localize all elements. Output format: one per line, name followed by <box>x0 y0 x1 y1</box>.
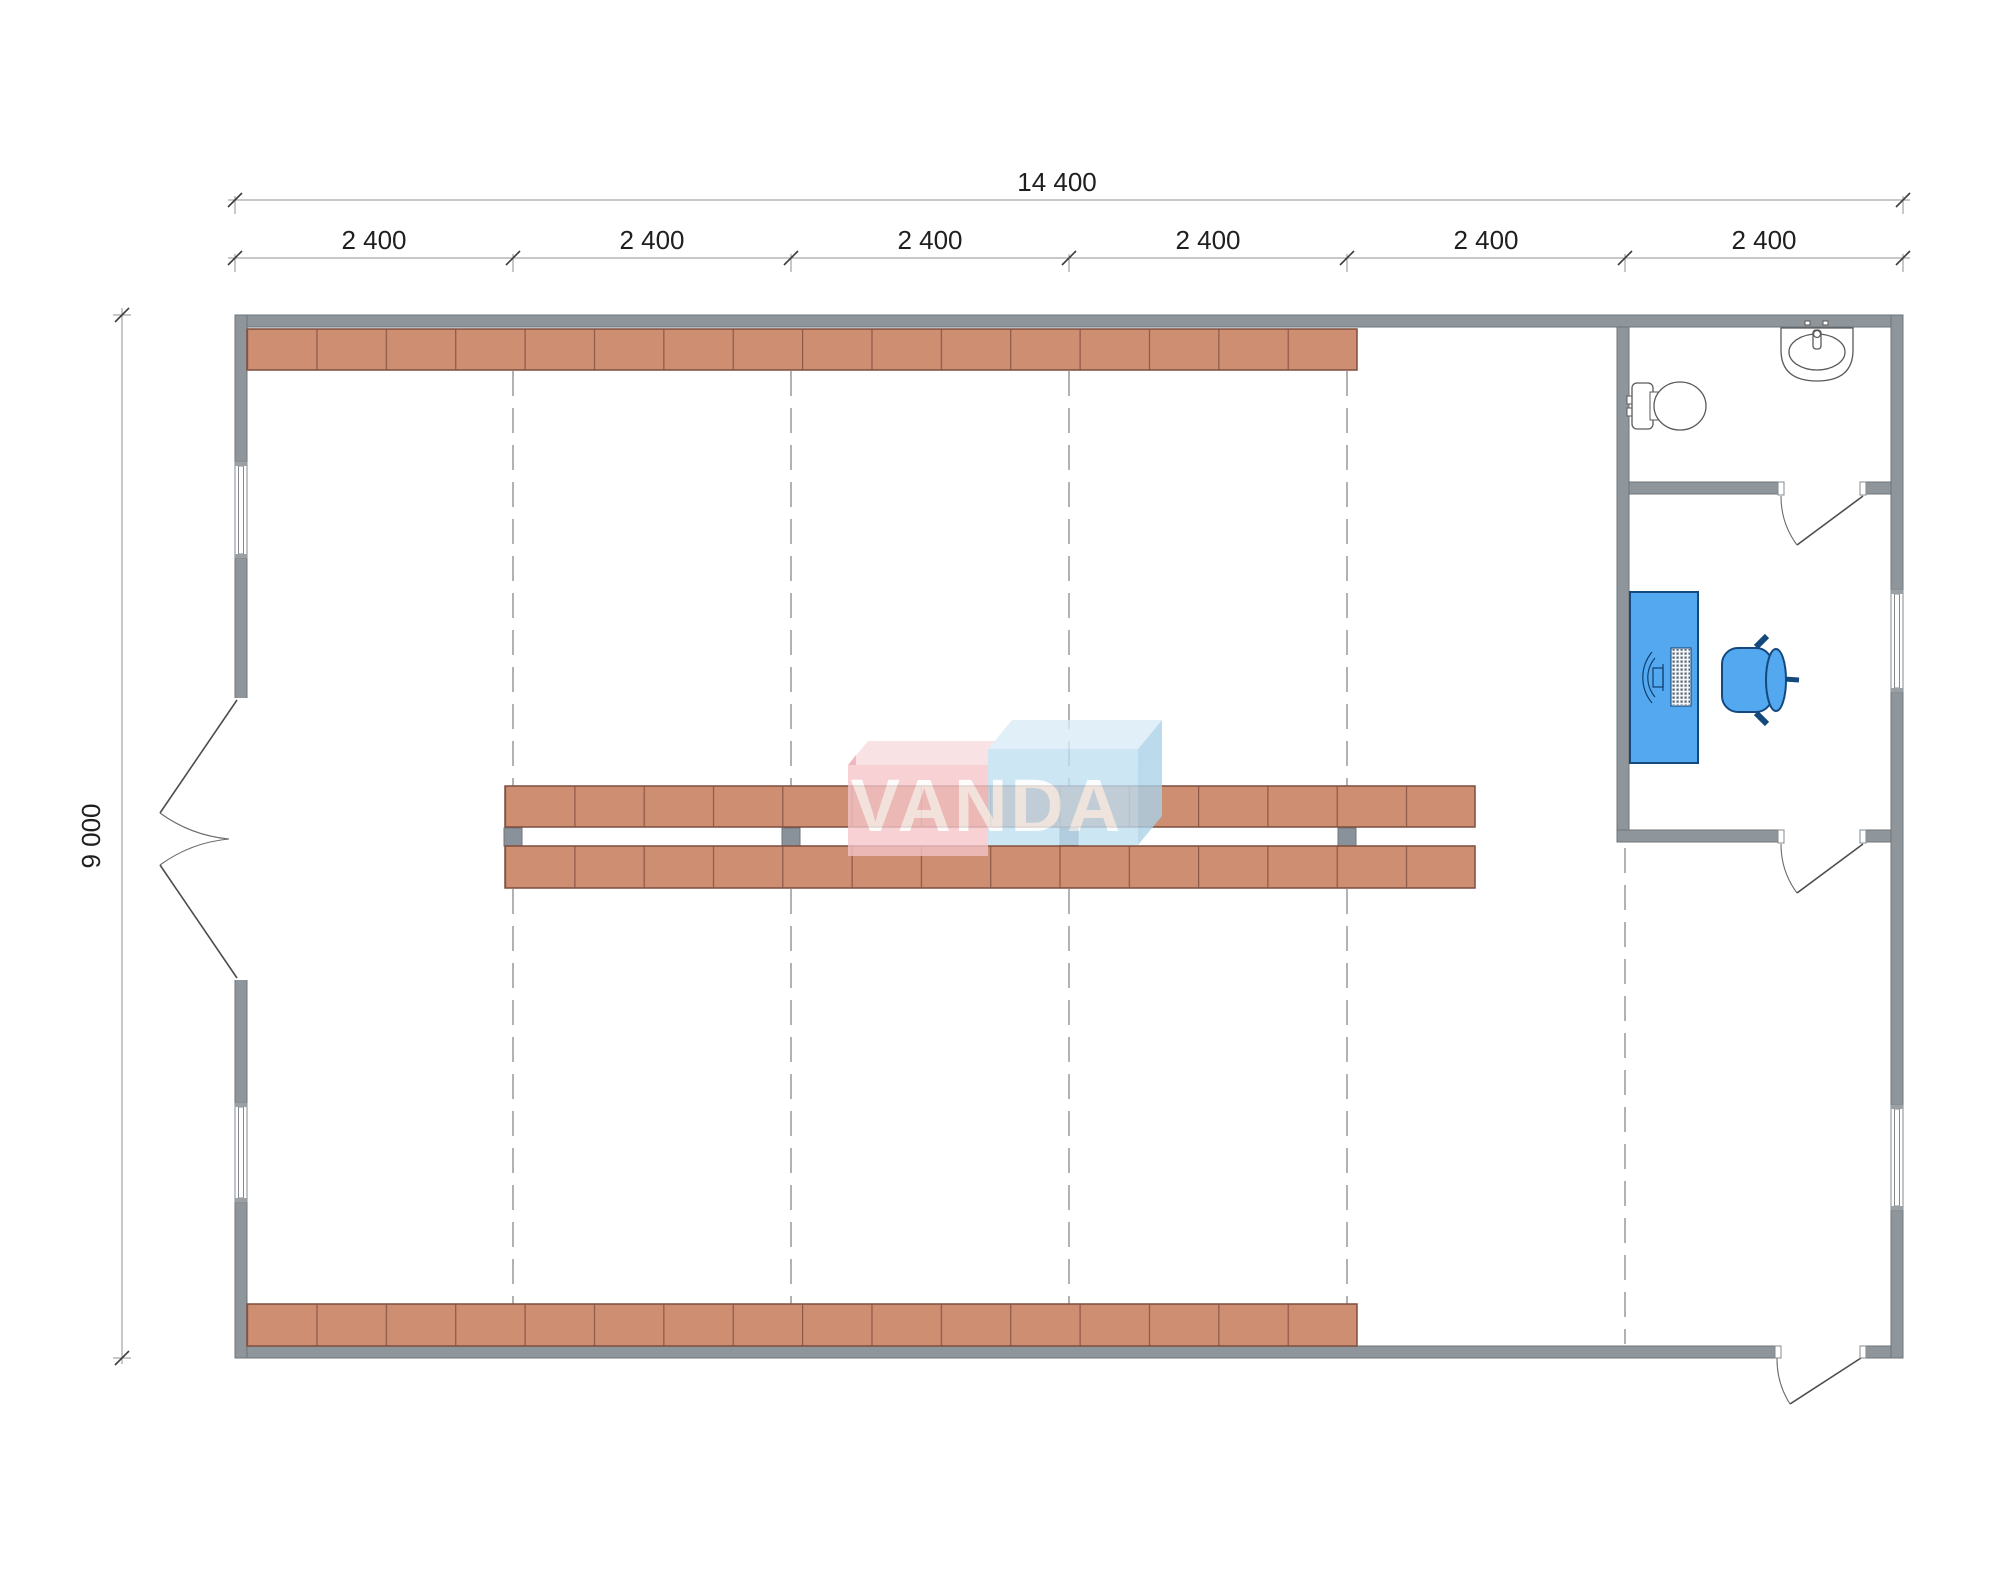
opening-door-bathroom <box>1778 481 1866 496</box>
watermark-text: VANDA <box>851 764 1124 847</box>
toilet <box>1627 382 1706 430</box>
dim-overall-height-label: 9 000 <box>76 803 106 868</box>
dim-bay-label: 2 400 <box>1731 225 1796 255</box>
window-left-upper <box>235 462 247 558</box>
dim-bay-label: 2 400 <box>619 225 684 255</box>
window-left-lower <box>235 1103 247 1202</box>
desk-keyboard <box>1671 648 1691 706</box>
floor-plan-drawing: 14 400 2 400 2 400 2 400 2 400 2 400 2 4… <box>0 0 2000 1574</box>
shelf-row-top <box>247 329 1357 370</box>
dim-overall-width-label: 14 400 <box>1017 167 1097 197</box>
dim-bay-label: 2 400 <box>1453 225 1518 255</box>
dim-bay-label: 2 400 <box>897 225 962 255</box>
desk <box>1630 592 1698 763</box>
shelf-row-bottom <box>247 1304 1357 1346</box>
window-right-office <box>1891 590 1903 692</box>
sink <box>1781 321 1853 381</box>
dim-bay-label: 2 400 <box>1175 225 1240 255</box>
window-right-lower <box>1891 1105 1903 1210</box>
floor-plan-canvas: 14 400 2 400 2 400 2 400 2 400 2 400 2 4… <box>0 0 2000 1574</box>
opening-door-bottom <box>1775 1345 1866 1360</box>
shelf-row-middle-lower <box>505 846 1475 888</box>
dim-bay-label: 2 400 <box>341 225 406 255</box>
opening-double-door-left <box>234 698 249 980</box>
opening-door-office <box>1778 829 1866 844</box>
